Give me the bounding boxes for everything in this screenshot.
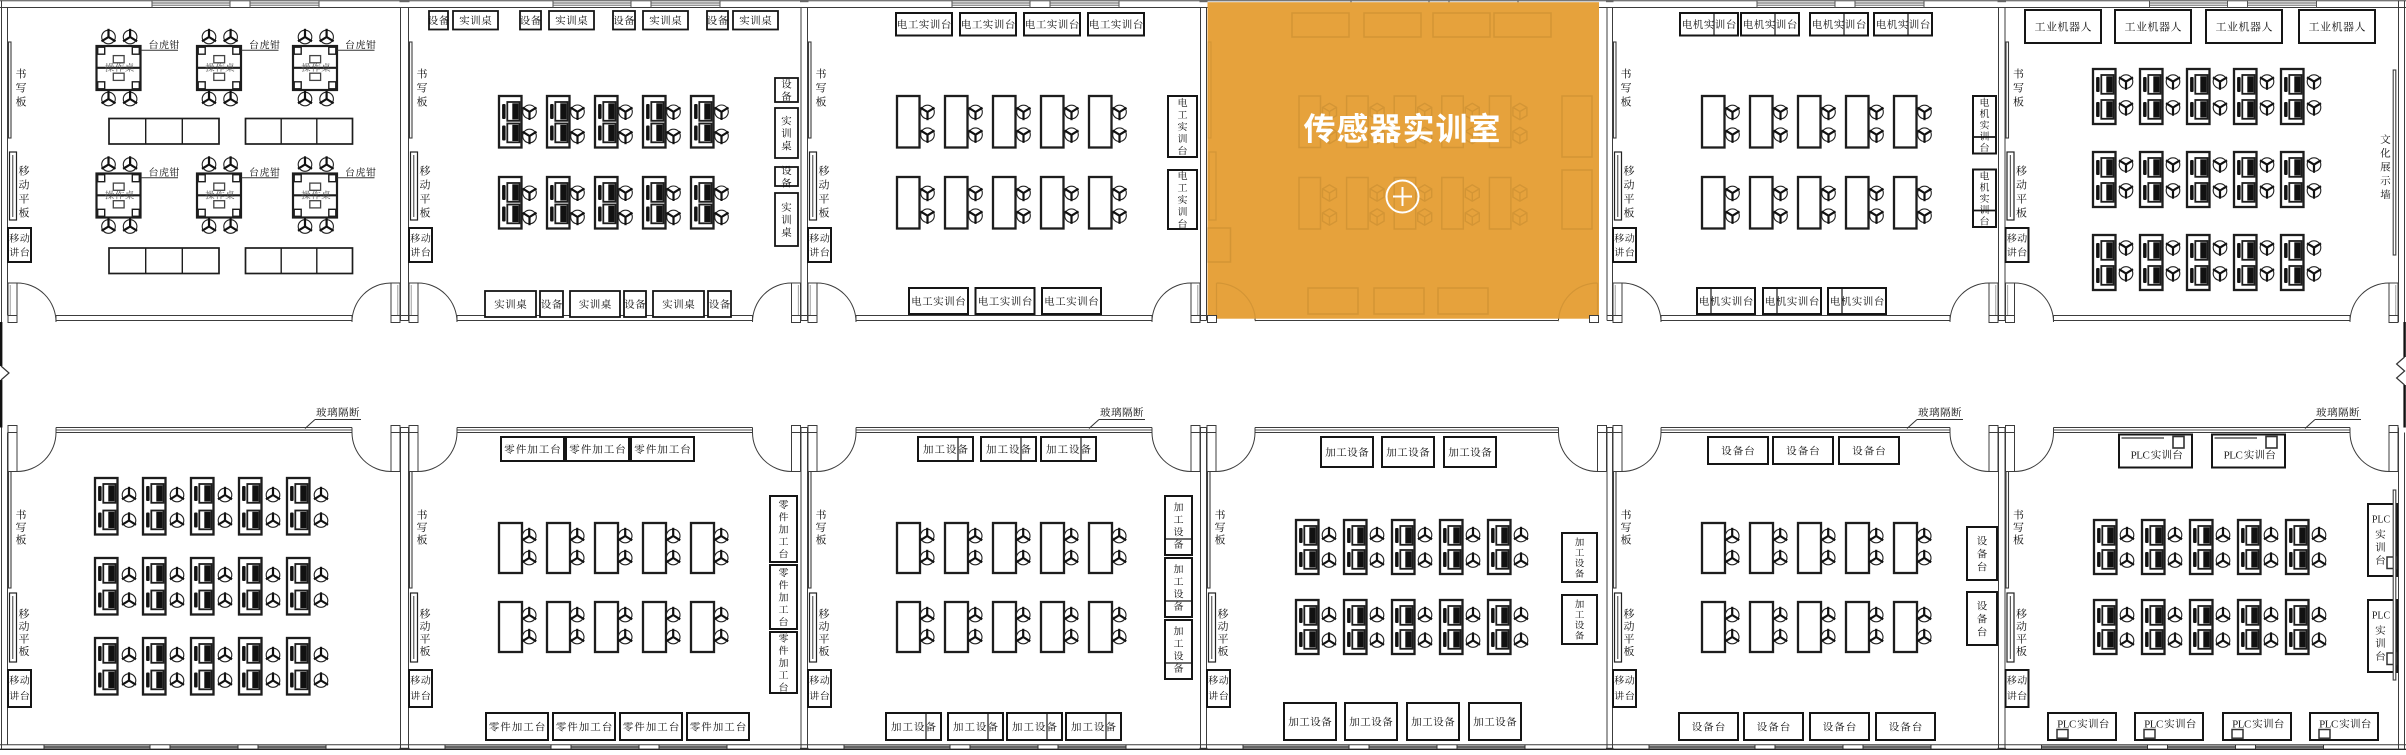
- svg-text:PLC: PLC: [2319, 718, 2338, 730]
- svg-text:PLC: PLC: [2057, 718, 2076, 730]
- svg-text:PLC: PLC: [2372, 611, 2391, 622]
- svg-text:PLC: PLC: [2131, 449, 2150, 461]
- svg-text:PLC: PLC: [2224, 449, 2243, 461]
- svg-text:PLC: PLC: [2144, 718, 2163, 730]
- svg-text:PLC: PLC: [2372, 515, 2391, 526]
- svg-text:PLC: PLC: [2232, 718, 2251, 730]
